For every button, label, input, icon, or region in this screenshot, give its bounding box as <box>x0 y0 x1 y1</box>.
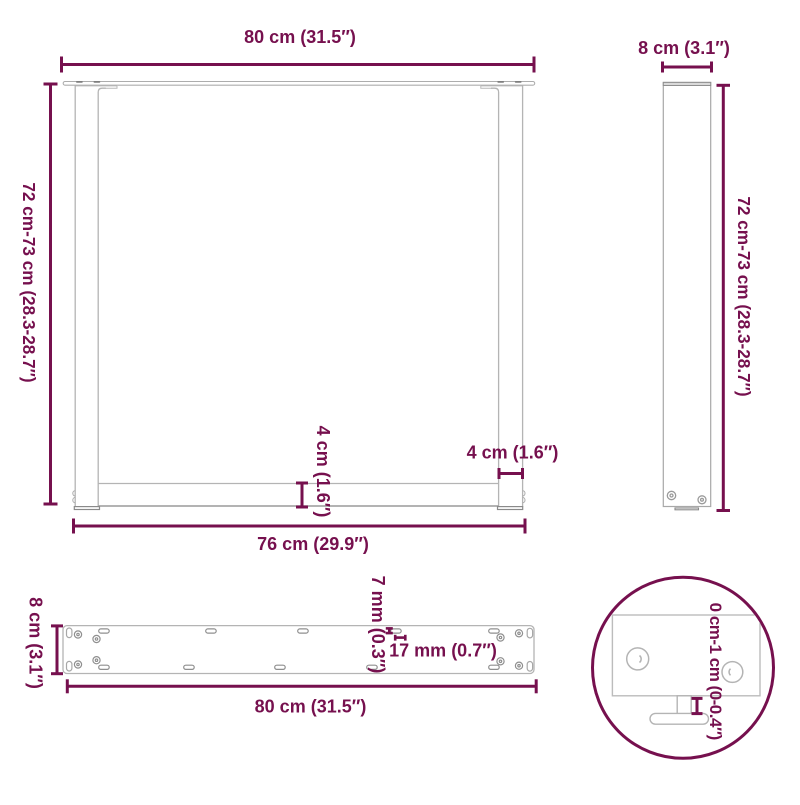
svg-text:80 cm (31.5″): 80 cm (31.5″) <box>255 697 367 717</box>
svg-text:7 mm (0.3″): 7 mm (0.3″) <box>368 576 388 674</box>
svg-text:8 cm (3.1″): 8 cm (3.1″) <box>26 597 46 689</box>
svg-text:0 cm-1 cm (0-0.4″): 0 cm-1 cm (0-0.4″) <box>706 603 725 740</box>
svg-text:8 cm (3.1″): 8 cm (3.1″) <box>638 38 730 58</box>
svg-text:72 cm-73 cm (28.3-28.7″): 72 cm-73 cm (28.3-28.7″) <box>734 196 754 396</box>
svg-text:4 cm (1.6″): 4 cm (1.6″) <box>467 443 559 463</box>
svg-text:17 mm (0.7″): 17 mm (0.7″) <box>389 641 497 661</box>
svg-text:4 cm (1.6″): 4 cm (1.6″) <box>313 426 333 518</box>
svg-text:80 cm (31.5″): 80 cm (31.5″) <box>244 27 356 47</box>
svg-text:76 cm (29.9″): 76 cm (29.9″) <box>257 534 369 554</box>
svg-text:72 cm-73 cm (28.3-28.7″): 72 cm-73 cm (28.3-28.7″) <box>19 182 39 382</box>
